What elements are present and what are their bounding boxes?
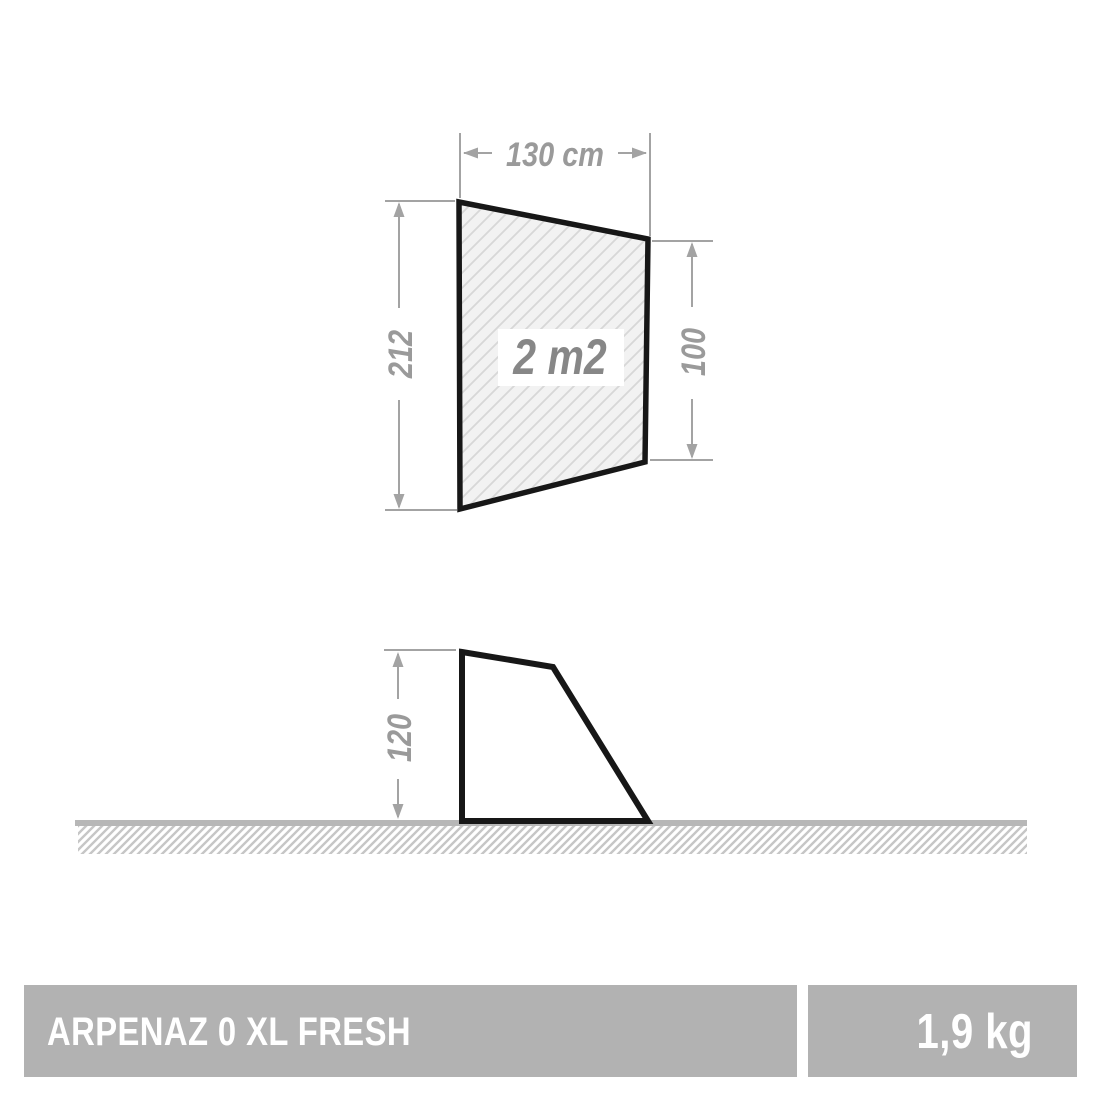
- left-height-label: 212: [381, 329, 420, 379]
- arrow-up-icon: [687, 242, 698, 257]
- right-height-label: 100: [674, 327, 713, 376]
- footer: ARPENAZ 0 XL FRESH 1,9 kg: [0, 985, 1100, 1077]
- arrow-up-icon: [394, 202, 405, 217]
- arrow-up-icon: [393, 652, 404, 667]
- arrow-right-icon: [632, 148, 647, 159]
- side-height-dimension: 120: [376, 650, 456, 819]
- product-weight: 1,9 kg: [917, 985, 1033, 1079]
- weight-bar: 1,9 kg: [808, 985, 1077, 1077]
- ground-hatch: [78, 826, 1027, 854]
- product-name-bar: ARPENAZ 0 XL FRESH: [24, 985, 797, 1077]
- ground: [75, 820, 1027, 854]
- side-height-label: 120: [380, 713, 419, 762]
- product-name: ARPENAZ 0 XL FRESH: [47, 985, 411, 1079]
- right-height-dimension: 100: [650, 241, 714, 460]
- arrow-down-icon: [394, 494, 405, 509]
- width-label: 130 cm: [506, 135, 604, 174]
- side-view: [462, 652, 648, 821]
- product-dimension-diagram: 2 m2 130 cm 212: [0, 0, 1100, 1100]
- diagram-canvas: 2 m2 130 cm 212: [0, 0, 1100, 960]
- arrow-down-icon: [687, 444, 698, 459]
- front-panel-view: 2 m2: [459, 202, 648, 509]
- side-view-outline: [462, 652, 648, 821]
- arrow-down-icon: [393, 804, 404, 819]
- arrow-left-icon: [463, 148, 478, 159]
- area-label: 2 m2: [512, 329, 606, 385]
- left-height-dimension: 212: [377, 201, 457, 510]
